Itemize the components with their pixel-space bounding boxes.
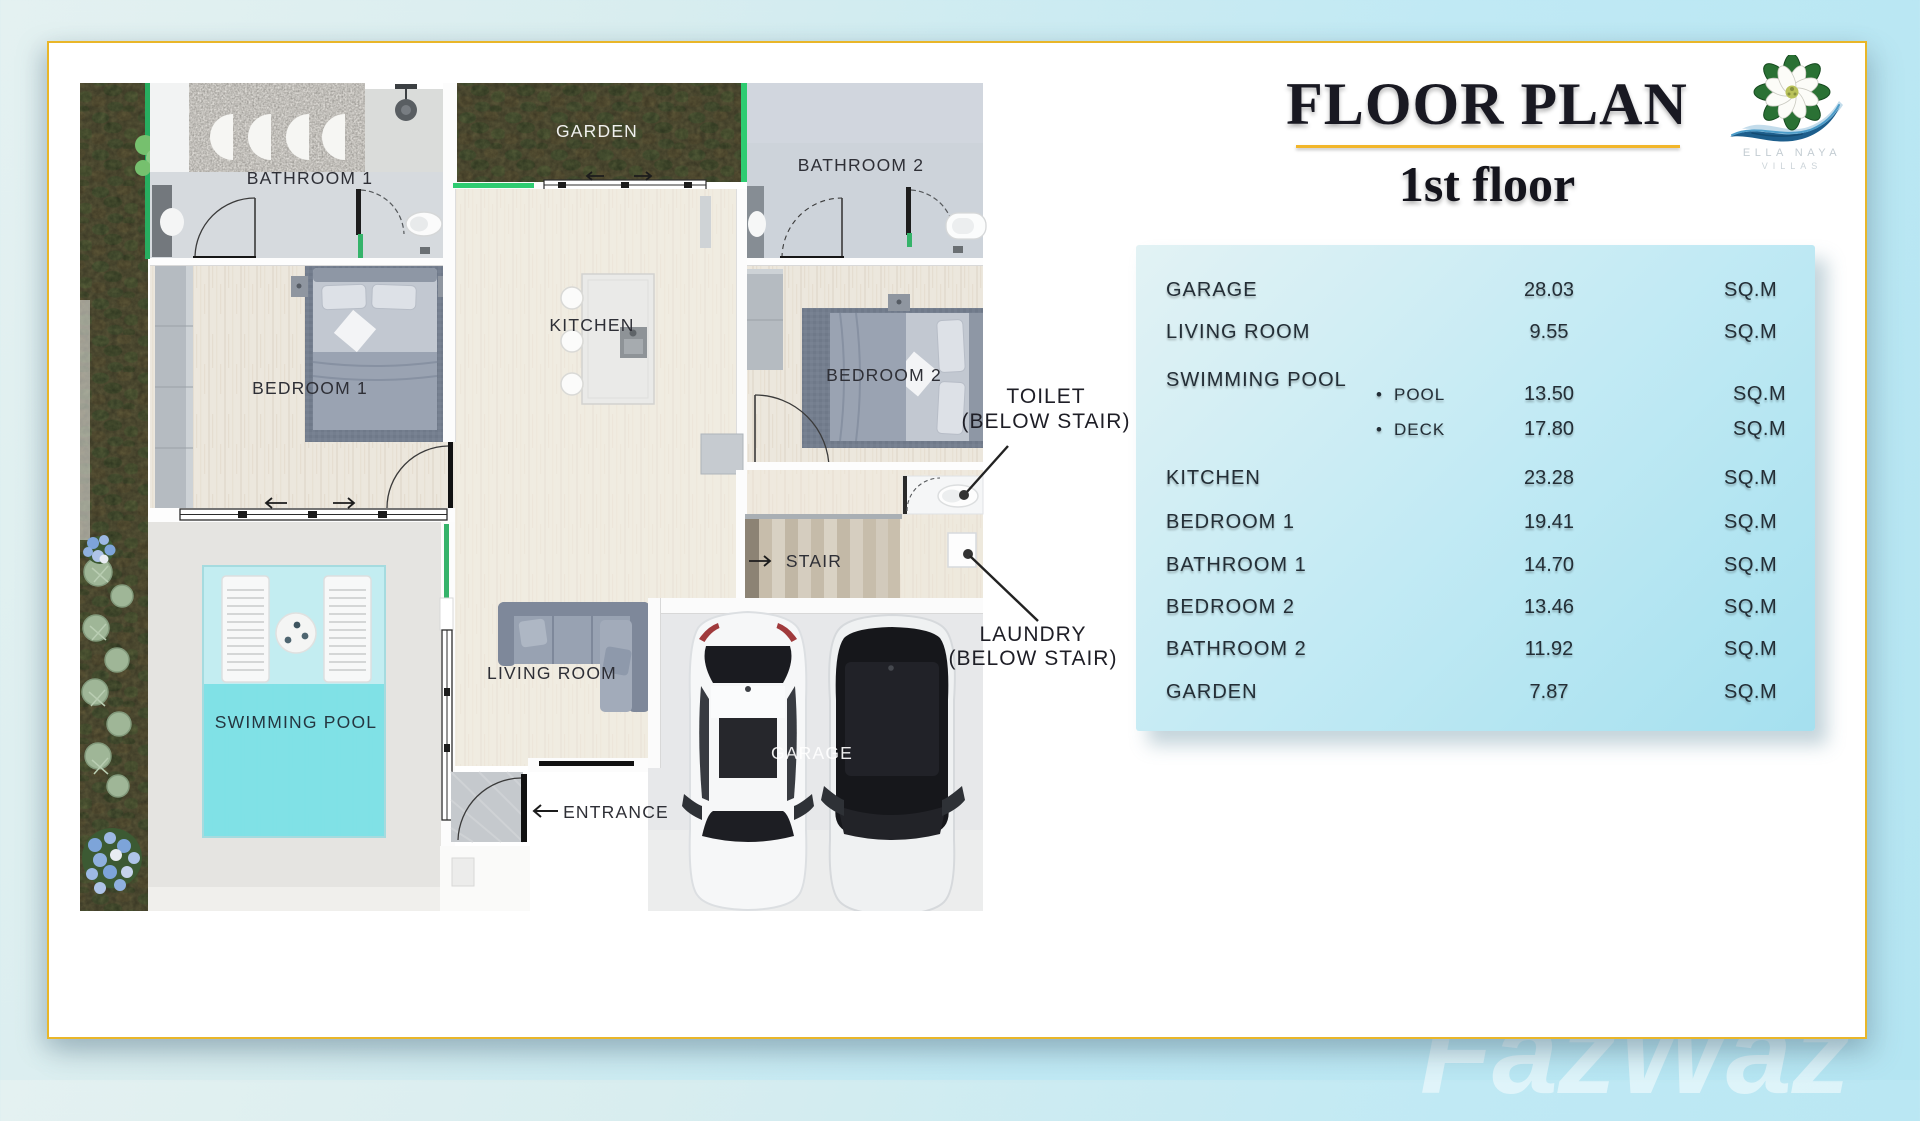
svg-text:STAIR: STAIR — [786, 551, 842, 571]
svg-text:ELLA NAYA: ELLA NAYA — [1743, 147, 1841, 159]
svg-text:BATHROOM 1: BATHROOM 1 — [247, 168, 373, 188]
svg-text:(BELOW STAIR): (BELOW STAIR) — [962, 410, 1130, 433]
svg-text:LIVING ROOM: LIVING ROOM — [487, 663, 617, 683]
svg-text:SWIMMING POOL: SWIMMING POOL — [215, 712, 377, 732]
svg-text:GARAGE: GARAGE — [771, 743, 853, 763]
svg-text:(BELOW STAIR): (BELOW STAIR) — [949, 647, 1118, 670]
svg-text:BEDROOM 2: BEDROOM 2 — [826, 365, 942, 385]
svg-text:GARDEN: GARDEN — [556, 121, 638, 141]
svg-text:TOILET: TOILET — [1006, 385, 1085, 408]
svg-text:LAUNDRY: LAUNDRY — [980, 623, 1087, 646]
svg-text:KITCHEN: KITCHEN — [549, 315, 634, 335]
svg-text:ENTRANCE: ENTRANCE — [563, 802, 669, 822]
svg-text:BATHROOM 2: BATHROOM 2 — [798, 155, 924, 175]
svg-text:VILLAS: VILLAS — [1762, 161, 1823, 170]
svg-text:BEDROOM 1: BEDROOM 1 — [252, 378, 368, 398]
